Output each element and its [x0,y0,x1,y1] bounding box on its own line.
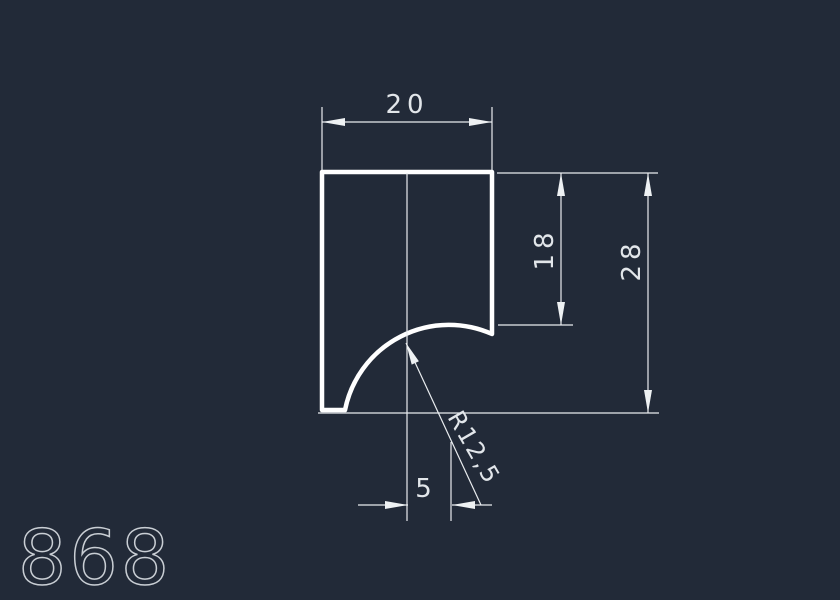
part-number-text[interactable]: 868 [18,513,172,600]
arrowhead [452,501,475,509]
arrowhead [406,343,419,365]
dimension-text-side-depth[interactable]: 18 [530,227,560,270]
dimension-text-width[interactable]: 20 [385,90,428,120]
arrowhead [557,173,565,196]
arrowhead [322,118,345,126]
dimension-height[interactable]: 28 [318,173,659,413]
arrowhead [385,501,408,509]
arrowhead [469,118,492,126]
dimension-text-center-offset[interactable]: 5 [415,474,437,504]
dimension-width[interactable]: 20 [322,90,492,170]
cad-model-space[interactable]: 20 18 28 5 [0,0,840,600]
arrowhead [644,173,652,196]
cad-drawing: 20 18 28 5 [0,0,840,600]
dimension-text-height[interactable]: 28 [617,238,647,281]
arrowhead [644,390,652,413]
arrowhead [557,302,565,325]
